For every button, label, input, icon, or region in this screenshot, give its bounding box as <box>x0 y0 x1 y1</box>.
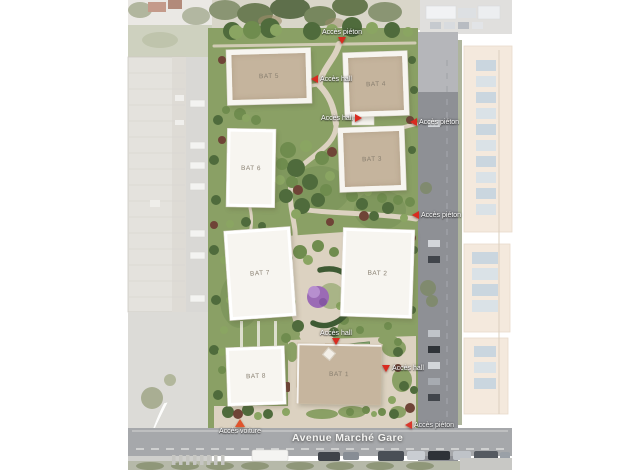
existing-buildings-east <box>464 46 512 414</box>
access-point-hall-bat5: Accès hall <box>311 75 352 83</box>
arrow-left-icon <box>410 118 417 126</box>
access-label: Accès hall <box>320 76 352 83</box>
arrow-left-icon <box>405 421 412 429</box>
access-point-hall-bat1-east: Accès hall <box>382 365 424 372</box>
access-point-hall-bat1-north: Accès hall <box>320 330 352 345</box>
access-point-hall-bat4: Accès hall <box>321 114 362 122</box>
building-bat-2: BAT 2 <box>340 228 414 318</box>
building-bat-6: BAT 6 <box>226 129 275 208</box>
access-label: Accès piéton <box>419 119 459 126</box>
building-label: BAT 8 <box>246 372 266 380</box>
arrow-left-icon <box>311 75 318 83</box>
arrow-left-icon <box>412 211 419 219</box>
flowering-tree-purple <box>307 286 329 308</box>
building-label: BAT 5 <box>259 73 279 81</box>
map-pin-icon <box>332 338 340 345</box>
building-label: BAT 7 <box>250 269 270 277</box>
map-pin-icon <box>382 365 390 372</box>
arrow-right-icon <box>355 114 362 122</box>
building-label: BAT 6 <box>241 164 261 171</box>
access-point-pedestrian-south-east: Accès piéton <box>405 421 454 429</box>
site-plan-canvas: BAT 5 BAT 4 BAT 6 BAT 3 BAT 7 BAT 2 BAT … <box>0 0 640 470</box>
street-name: Avenue Marché Gare <box>292 432 403 444</box>
access-point-pedestrian-east-upper: Accès piéton <box>410 118 459 126</box>
building-label: BAT 1 <box>329 370 349 377</box>
building-bat-3: BAT 3 <box>338 126 406 192</box>
access-label: Accès voiture <box>219 428 261 435</box>
access-point-pedestrian-north: Accès piéton <box>322 29 362 44</box>
access-label: Accès hall <box>320 330 352 337</box>
access-label: Accès piéton <box>421 212 461 219</box>
warning-triangle-icon <box>235 419 245 427</box>
building-bat-4: BAT 4 <box>343 51 409 117</box>
building-label: BAT 3 <box>362 155 382 163</box>
map-pin-icon <box>338 37 346 44</box>
access-label: Accès hall <box>321 115 353 122</box>
access-point-car: Accès voiture <box>219 419 261 435</box>
access-point-pedestrian-east-mid: Accès piéton <box>412 211 461 219</box>
access-label: Accès piéton <box>322 29 362 36</box>
aerial-left-band <box>128 0 212 470</box>
building-bat-7: BAT 7 <box>224 227 296 320</box>
building-bat-8: BAT 8 <box>226 346 286 406</box>
access-label: Accès hall <box>392 365 424 372</box>
aerial-right-band <box>418 0 512 462</box>
access-label: Accès piéton <box>414 422 454 429</box>
building-label: BAT 2 <box>367 269 387 277</box>
building-bat-1: BAT 1 <box>296 343 381 404</box>
building-label: BAT 4 <box>366 80 386 88</box>
building-bat-5: BAT 5 <box>226 48 311 105</box>
